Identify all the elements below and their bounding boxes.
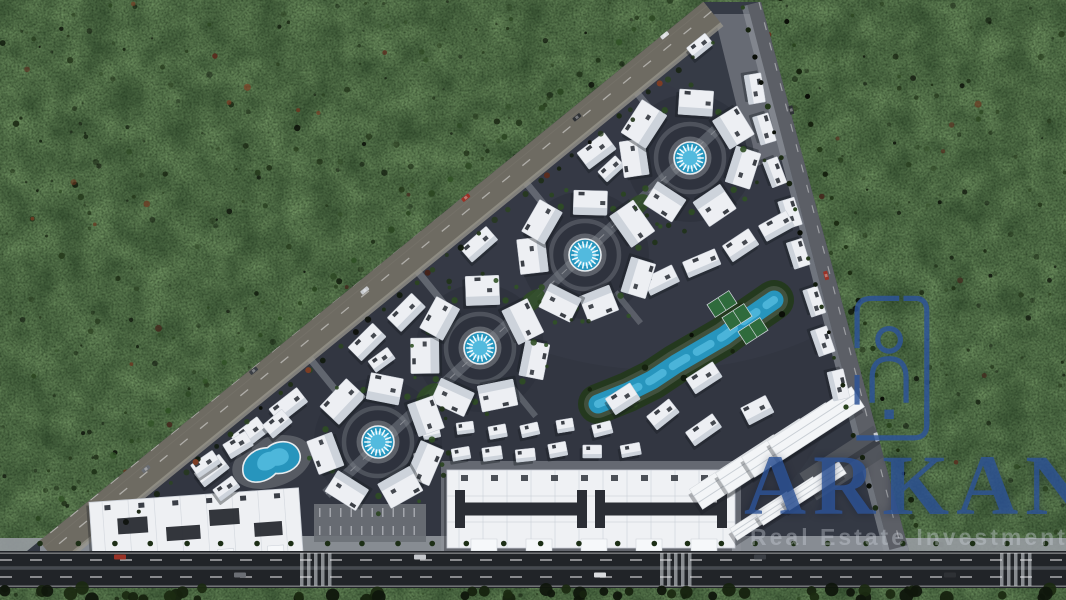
aerial-render-scene (0, 0, 1066, 600)
property-masterplan-image: ARKAN Real Estate Investment (0, 0, 1066, 600)
commercial-building-center (441, 461, 741, 561)
